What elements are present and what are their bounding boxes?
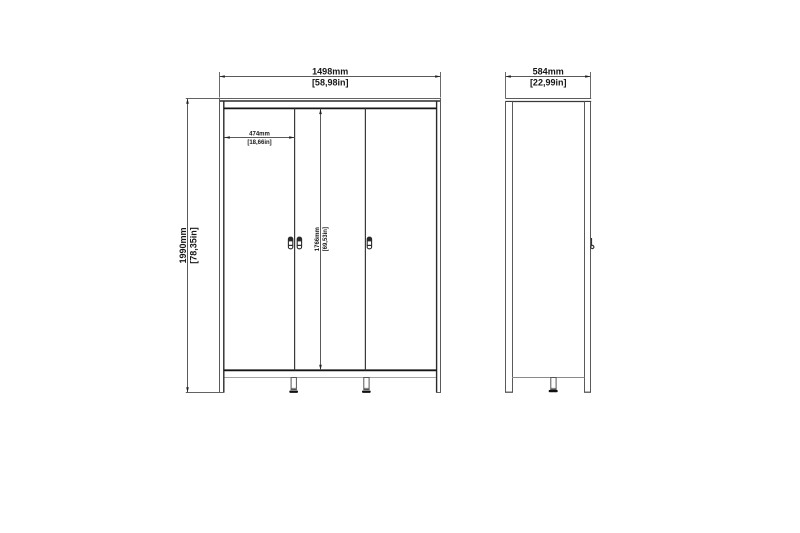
svg-text:474mm: 474mm <box>249 131 270 137</box>
svg-text:584mm: 584mm <box>533 67 564 77</box>
svg-text:1990mm: 1990mm <box>178 227 188 263</box>
svg-text:1766mm: 1766mm <box>315 227 321 251</box>
svg-text:[18,66in]: [18,66in] <box>247 140 271 146</box>
svg-text:[78,35in]: [78,35in] <box>189 227 199 264</box>
svg-text:[22,99in]: [22,99in] <box>530 78 567 88</box>
svg-text:[69,53in]: [69,53in] <box>323 227 329 251</box>
svg-text:1498mm: 1498mm <box>312 67 348 77</box>
svg-text:[58,98in]: [58,98in] <box>312 78 349 88</box>
